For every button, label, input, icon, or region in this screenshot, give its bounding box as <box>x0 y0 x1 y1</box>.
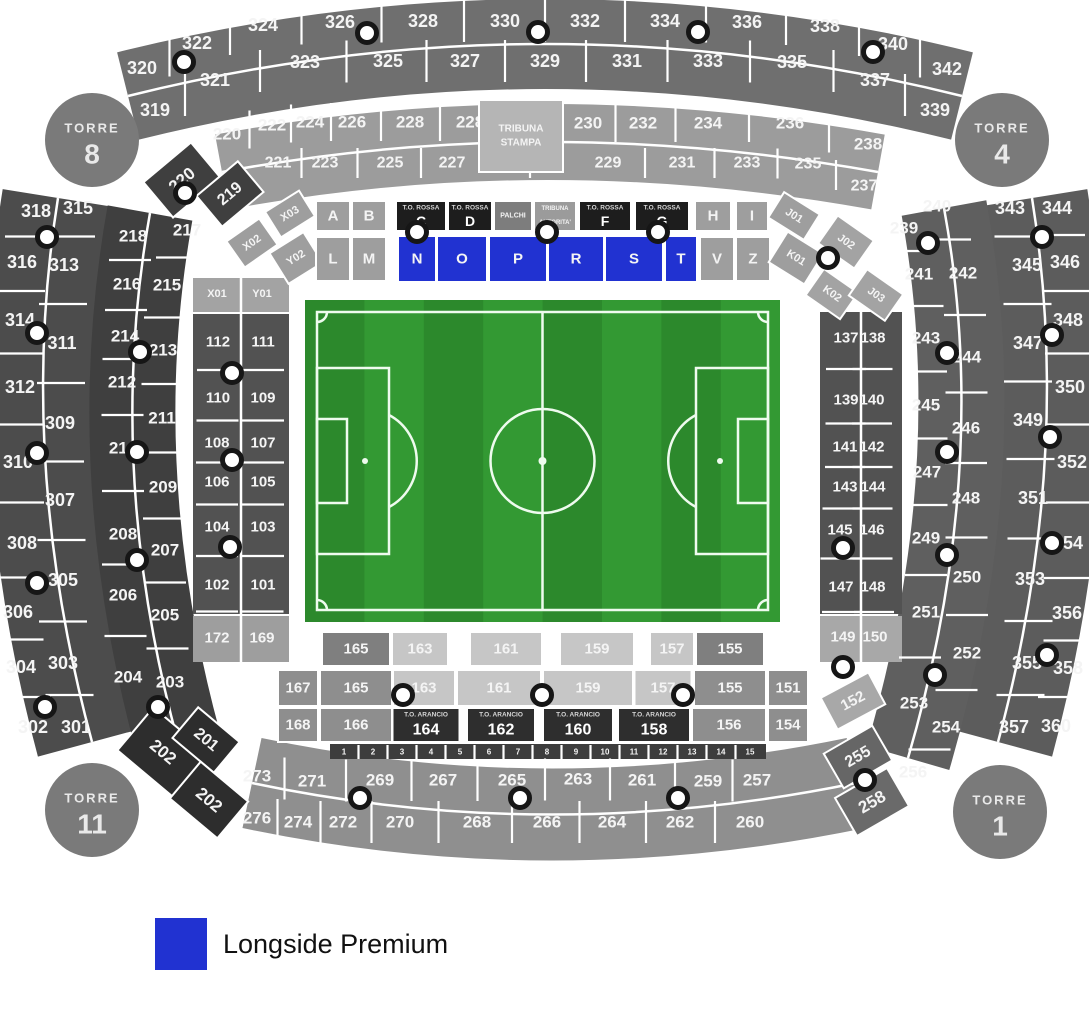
section-10[interactable]: 10 <box>601 748 610 757</box>
section-172[interactable]: 172 <box>204 630 229 647</box>
section-sub-label: T.O. ARANCIO <box>556 712 600 719</box>
section-142[interactable]: 142 <box>859 439 884 456</box>
section-111[interactable]: 111 <box>251 334 274 351</box>
section-D[interactable]: T.O. ROSSAD <box>448 201 492 231</box>
section-4[interactable]: 4 <box>429 748 434 757</box>
section-218[interactable]: 218 <box>119 227 147 246</box>
section-label: 163 <box>407 641 432 658</box>
section-TRIBUNA-STAMPA[interactable]: TRIBUNASTAMPA <box>479 100 563 172</box>
section-240[interactable]: 240 <box>923 197 951 216</box>
penalty-spot-right <box>717 458 723 464</box>
section-155[interactable]: 155 <box>696 632 764 666</box>
section-label: S <box>629 251 639 268</box>
entrance-dot <box>36 698 55 717</box>
section-165[interactable]: 165 <box>320 670 392 706</box>
section-209[interactable]: 209 <box>149 478 177 497</box>
section-140[interactable]: 140 <box>859 392 884 409</box>
section-338[interactable]: 338 <box>810 16 840 36</box>
section-246[interactable]: 246 <box>952 419 980 438</box>
section-139[interactable]: 139 <box>833 392 858 409</box>
entrance-dot <box>128 443 147 462</box>
section-label: 156 <box>716 717 741 734</box>
section-168[interactable]: 168 <box>278 708 318 742</box>
section-106[interactable]: 106 <box>204 474 229 491</box>
section-label: 155 <box>717 641 742 658</box>
section-208[interactable]: 208 <box>109 525 137 544</box>
section-334[interactable]: 334 <box>650 11 680 31</box>
entrance-dot <box>938 546 957 565</box>
entrance-dot <box>834 539 853 558</box>
torre-word: TORRE <box>64 121 119 136</box>
section-324[interactable]: 324 <box>248 15 278 35</box>
section-105[interactable]: 105 <box>250 474 275 491</box>
section-PALCHI[interactable]: PALCHI <box>494 201 532 231</box>
section-216[interactable]: 216 <box>113 275 141 294</box>
section-252[interactable]: 252 <box>953 644 981 663</box>
section-R[interactable]: R <box>548 236 604 282</box>
section-226[interactable]: 226 <box>338 113 366 132</box>
section-X02[interactable]: X02 <box>226 218 277 267</box>
section-label: PALCHI <box>500 213 526 220</box>
section-148[interactable]: 148 <box>860 579 885 596</box>
section-label: P <box>513 251 523 268</box>
section-109[interactable]: 109 <box>250 390 275 407</box>
section-351[interactable]: 351 <box>1018 488 1048 508</box>
section-150[interactable]: 150 <box>862 629 887 646</box>
section-label: M <box>363 251 376 268</box>
entrance-dot <box>1043 534 1062 553</box>
section-label: Z <box>748 251 757 268</box>
section-166[interactable]: 166 <box>320 708 392 742</box>
section-263[interactable]: 263 <box>564 770 592 789</box>
section-158[interactable]: T.O. ARANCIO158 <box>618 708 690 742</box>
section-205[interactable]: 205 <box>151 606 179 625</box>
torre-number: 8 <box>84 139 100 170</box>
torre-number: 11 <box>77 809 107 840</box>
section-B[interactable]: B <box>352 201 386 231</box>
section-347[interactable]: 347 <box>1013 333 1043 353</box>
section-107[interactable]: 107 <box>250 435 275 452</box>
entrance-dot <box>1043 326 1062 345</box>
torre-number: 4 <box>994 139 1010 170</box>
section-333[interactable]: 333 <box>693 51 723 71</box>
section-253[interactable]: 253 <box>900 694 928 713</box>
penalty-spot-left <box>362 458 368 464</box>
section-328[interactable]: 328 <box>408 11 438 31</box>
section-248[interactable]: 248 <box>952 489 980 508</box>
entrance-dot <box>674 686 693 705</box>
section-M[interactable]: M <box>352 237 386 281</box>
section-3[interactable]: 3 <box>400 748 405 757</box>
section-319[interactable]: 319 <box>140 100 170 120</box>
torre-word: TORRE <box>974 121 1029 136</box>
section-329[interactable]: 329 <box>530 51 560 71</box>
section-161[interactable]: 161 <box>470 632 542 666</box>
entrance-dot <box>938 443 957 462</box>
entrance-dot <box>669 789 688 808</box>
section-228[interactable]: 228 <box>396 113 424 132</box>
section-label: D <box>465 213 475 229</box>
section-274[interactable]: 274 <box>284 813 313 832</box>
section-Y01[interactable]: Y01 <box>252 288 272 300</box>
section-242[interactable]: 242 <box>949 264 977 283</box>
entrance-dot <box>351 789 370 808</box>
section-X01[interactable]: X01 <box>207 288 227 300</box>
section-222[interactable]: 222 <box>258 116 286 135</box>
section-345[interactable]: 345 <box>1012 255 1042 275</box>
entrance-dot <box>919 234 938 253</box>
section-141[interactable]: 141 <box>832 439 857 456</box>
section-261[interactable]: 261 <box>628 771 656 790</box>
section-169[interactable]: 169 <box>249 630 274 647</box>
section-label: 158 <box>641 722 668 739</box>
section-159[interactable]: 159 <box>543 670 633 706</box>
entrance-dot <box>28 324 47 343</box>
section-label-line1: TRIBUNA <box>499 124 544 135</box>
legend-color-swatch <box>155 918 207 970</box>
entrance-dot <box>358 24 377 43</box>
section-273[interactable]: 273 <box>243 767 271 786</box>
section-327[interactable]: 327 <box>450 51 480 71</box>
section-149[interactable]: 149 <box>830 629 855 646</box>
section-305[interactable]: 305 <box>48 570 78 590</box>
section-156[interactable]: 156 <box>692 708 766 742</box>
section-label: O <box>456 251 468 268</box>
section-213[interactable]: 213 <box>149 341 177 360</box>
section-label: Y01 <box>252 288 272 300</box>
section-203[interactable]: 203 <box>156 673 184 692</box>
section-311[interactable]: 311 <box>47 333 76 353</box>
section-147[interactable]: 147 <box>828 579 853 596</box>
section-label: 164 <box>413 722 440 739</box>
section-label: 161 <box>486 680 511 697</box>
football-pitch <box>305 300 780 622</box>
section-356[interactable]: 356 <box>1052 603 1082 623</box>
section-309[interactable]: 309 <box>45 413 75 433</box>
section-label: 168 <box>285 717 310 734</box>
section-212[interactable]: 212 <box>108 373 136 392</box>
section-sub-label: T.O. ARANCIO <box>404 712 448 719</box>
section-V[interactable]: V <box>700 237 734 281</box>
section-label: 160 <box>565 722 592 739</box>
entrance-dot <box>394 686 413 705</box>
section-sub-label: T.O. ROSSA <box>644 205 681 212</box>
section-label-line2: STAMPA <box>501 138 542 149</box>
section-360[interactable]: 360 <box>1041 716 1071 736</box>
section-312[interactable]: 312 <box>5 377 35 397</box>
section-104[interactable]: 104 <box>204 519 230 536</box>
section-P[interactable]: P <box>489 236 547 282</box>
section-339[interactable]: 339 <box>920 100 950 120</box>
legend-label: Longside Premium <box>223 929 448 960</box>
section-sub-label: T.O. ROSSA <box>587 205 624 212</box>
section-207[interactable]: 207 <box>151 541 179 560</box>
section-label: V <box>712 251 722 268</box>
section-163[interactable]: 163 <box>392 632 448 666</box>
section-350[interactable]: 350 <box>1055 377 1085 397</box>
section-346[interactable]: 346 <box>1050 252 1080 272</box>
section-T[interactable]: T <box>665 236 697 282</box>
section-220[interactable]: 220 <box>213 125 241 144</box>
section-label: 159 <box>584 641 609 658</box>
section-230[interactable]: 230 <box>574 114 602 133</box>
section-label: 167 <box>285 680 310 697</box>
entrance-dot <box>926 666 945 685</box>
section-label: 162 <box>488 722 515 739</box>
section-101[interactable]: 101 <box>250 577 275 594</box>
section-249[interactable]: 249 <box>912 529 940 548</box>
section-103[interactable]: 103 <box>250 519 275 536</box>
section-label: 163 <box>411 680 436 697</box>
section-262[interactable]: 262 <box>666 813 694 832</box>
torre-word: TORRE <box>972 793 1027 808</box>
section-O[interactable]: O <box>437 236 487 282</box>
section-239[interactable]: 239 <box>890 219 918 238</box>
section-353[interactable]: 353 <box>1015 569 1045 589</box>
section-323[interactable]: 323 <box>290 52 320 72</box>
section-157[interactable]: 157 <box>650 632 694 666</box>
entrance-dot <box>538 223 557 242</box>
section-F[interactable]: T.O. ROSSAF <box>579 201 631 231</box>
torre-number: 1 <box>992 811 1008 842</box>
section-266[interactable]: 266 <box>533 813 561 832</box>
section-label: A <box>328 208 339 225</box>
section-label: H <box>708 208 719 225</box>
entrance-dot <box>529 23 548 42</box>
section-11[interactable]: 11 <box>630 748 639 757</box>
section-108[interactable]: 108 <box>204 435 229 452</box>
section-268[interactable]: 268 <box>463 813 491 832</box>
entrance-dot <box>149 698 168 717</box>
section-269[interactable]: 269 <box>366 771 394 790</box>
section-160[interactable]: T.O. ARANCIO160 <box>543 708 613 742</box>
section-161[interactable]: 161 <box>457 670 541 706</box>
section-223[interactable]: 223 <box>312 155 339 172</box>
legend: Longside Premium <box>155 918 448 970</box>
section-112[interactable]: 112 <box>206 334 230 351</box>
entrance-dot <box>408 223 427 242</box>
entrance-dot <box>689 23 708 42</box>
section-233[interactable]: 233 <box>734 155 761 172</box>
section-label: N <box>412 251 423 268</box>
section-260[interactable]: 260 <box>736 813 764 832</box>
section-label: 165 <box>343 680 368 697</box>
section-357[interactable]: 357 <box>999 717 1029 737</box>
section-326[interactable]: 326 <box>325 12 355 32</box>
entrance-dot <box>28 444 47 463</box>
section-241[interactable]: 241 <box>905 265 933 284</box>
section-322[interactable]: 322 <box>182 33 212 53</box>
entrance-dot <box>511 789 530 808</box>
section-276[interactable]: 276 <box>243 809 271 828</box>
entrance-dot <box>834 658 853 677</box>
section-237[interactable]: 237 <box>851 178 878 195</box>
section-256[interactable]: 256 <box>899 763 927 782</box>
section-K01[interactable]: K01 <box>769 232 824 285</box>
section-110[interactable]: 110 <box>206 390 230 407</box>
section-162[interactable]: T.O. ARANCIO162 <box>467 708 535 742</box>
section-271[interactable]: 271 <box>298 772 326 791</box>
section-229[interactable]: 229 <box>595 155 622 172</box>
entrance-dot <box>856 771 875 790</box>
section-7[interactable]: 7 <box>516 748 521 757</box>
section-217[interactable]: 217 <box>173 221 201 240</box>
torre-4: TORRE4 <box>955 93 1049 187</box>
section-267[interactable]: 267 <box>429 771 457 790</box>
section-sub-label: T.O. ARANCIO <box>479 712 523 719</box>
section-159[interactable]: 159 <box>560 632 634 666</box>
section-235[interactable]: 235 <box>795 156 822 173</box>
section-137[interactable]: 137 <box>833 330 858 347</box>
section-label: X01 <box>207 288 227 300</box>
entrance-dot <box>131 343 150 362</box>
section-14[interactable]: 14 <box>717 748 726 757</box>
section-234[interactable]: 234 <box>694 114 723 133</box>
section-308[interactable]: 308 <box>7 533 37 553</box>
section-344[interactable]: 344 <box>1042 198 1072 218</box>
torre-word: TORRE <box>64 791 119 806</box>
section-label: 165 <box>343 641 368 658</box>
entrance-dot <box>223 364 242 383</box>
entrance-dot <box>221 538 240 557</box>
section-12[interactable]: 12 <box>659 748 668 757</box>
section-331[interactable]: 331 <box>612 51 642 71</box>
section-250[interactable]: 250 <box>953 568 981 587</box>
section-337[interactable]: 337 <box>860 70 890 90</box>
section-221[interactable]: 221 <box>265 155 292 172</box>
section-label: 154 <box>775 717 801 734</box>
section-label: F <box>601 213 610 229</box>
section-231[interactable]: 231 <box>669 155 696 172</box>
section-1[interactable]: 1 <box>342 748 347 757</box>
section-307[interactable]: 307 <box>45 490 75 510</box>
section-315[interactable]: 315 <box>63 198 93 218</box>
section-330[interactable]: 330 <box>490 11 520 31</box>
section-label: 161 <box>493 641 518 658</box>
section-Z[interactable]: Z <box>736 237 770 281</box>
entrance-dot <box>1033 228 1052 247</box>
center-spot <box>539 457 547 465</box>
section-I[interactable]: I <box>736 201 768 231</box>
section-272[interactable]: 272 <box>329 813 357 832</box>
torre-8: TORRE8 <box>45 93 139 187</box>
section-227[interactable]: 227 <box>439 155 466 172</box>
section-164[interactable]: T.O. ARANCIO164 <box>393 708 460 742</box>
section-8[interactable]: 8 <box>545 748 550 757</box>
section-155[interactable]: 155 <box>694 670 766 706</box>
section-label: 166 <box>343 717 368 734</box>
section-257[interactable]: 257 <box>743 771 771 790</box>
section-shape[interactable] <box>479 100 563 172</box>
section-146[interactable]: 146 <box>859 522 884 539</box>
section-A[interactable]: A <box>316 201 350 231</box>
section-304[interactable]: 304 <box>6 657 36 677</box>
section-301[interactable]: 301 <box>61 717 91 737</box>
section-145[interactable]: 145 <box>827 522 852 539</box>
section-154[interactable]: 154 <box>768 708 808 742</box>
section-318[interactable]: 318 <box>21 201 51 221</box>
section-316[interactable]: 316 <box>7 252 37 272</box>
section-206[interactable]: 206 <box>109 586 137 605</box>
section-165[interactable]: 165 <box>322 632 390 666</box>
section-138[interactable]: 138 <box>860 330 885 347</box>
section-204[interactable]: 204 <box>114 668 143 687</box>
section-9[interactable]: 9 <box>574 748 579 757</box>
section-2[interactable]: 2 <box>371 748 376 757</box>
section-325[interactable]: 325 <box>373 51 403 71</box>
section-321[interactable]: 321 <box>200 70 230 90</box>
section-215[interactable]: 215 <box>153 276 181 295</box>
entrance-dot <box>175 53 194 72</box>
entrance-dot <box>128 551 147 570</box>
section-label: T <box>676 251 685 268</box>
section-243[interactable]: 243 <box>912 329 940 348</box>
section-247[interactable]: 247 <box>913 463 941 482</box>
section-306[interactable]: 306 <box>3 602 33 622</box>
section-15[interactable]: 15 <box>746 748 755 757</box>
section-label: 157 <box>659 641 684 658</box>
section-167[interactable]: 167 <box>278 670 318 706</box>
section-Y02[interactable]: Y02 <box>270 232 323 284</box>
section-251[interactable]: 251 <box>912 603 940 622</box>
section-352[interactable]: 352 <box>1057 452 1087 472</box>
section-343[interactable]: 343 <box>995 198 1025 218</box>
section-336[interactable]: 336 <box>732 12 762 32</box>
entrance-dot <box>864 43 883 62</box>
section-270[interactable]: 270 <box>386 813 414 832</box>
section-254[interactable]: 254 <box>932 718 961 737</box>
section-L[interactable]: L <box>316 237 350 281</box>
section-332[interactable]: 332 <box>570 11 600 31</box>
stadium-map: 3203223243263283303323343363383403423193… <box>0 0 1089 890</box>
section-13[interactable]: 13 <box>688 748 697 757</box>
section-5[interactable]: 5 <box>458 748 463 757</box>
section-6[interactable]: 6 <box>487 748 492 757</box>
section-211[interactable]: 211 <box>148 409 175 428</box>
section-259[interactable]: 259 <box>694 772 722 791</box>
section-313[interactable]: 313 <box>49 255 79 275</box>
section-224[interactable]: 224 <box>296 113 325 132</box>
section-349[interactable]: 349 <box>1013 410 1043 430</box>
section-sub-label: T.O. ROSSA <box>403 205 440 212</box>
section-238[interactable]: 238 <box>854 135 882 154</box>
entrance-dot <box>28 574 47 593</box>
section-sub-label: T.O. ARANCIO <box>632 712 676 719</box>
section-335[interactable]: 335 <box>777 52 807 72</box>
entrance-dot <box>533 686 552 705</box>
section-151[interactable]: 151 <box>768 670 808 706</box>
section-342[interactable]: 342 <box>932 59 962 79</box>
torre-11: TORRE11 <box>45 763 139 857</box>
section-302[interactable]: 302 <box>18 717 48 737</box>
section-225[interactable]: 225 <box>377 155 404 172</box>
section-264[interactable]: 264 <box>598 813 627 832</box>
section-144[interactable]: 144 <box>860 479 886 496</box>
section-label-line1: TRIBUNA <box>542 206 570 212</box>
section-143[interactable]: 143 <box>832 479 857 496</box>
section-303[interactable]: 303 <box>48 653 78 673</box>
section-358[interactable]: 358 <box>1053 658 1083 678</box>
section-102[interactable]: 102 <box>204 577 229 594</box>
section-H[interactable]: H <box>695 201 731 231</box>
section-sub-label: T.O. ROSSA <box>452 205 489 212</box>
section-320[interactable]: 320 <box>127 58 157 78</box>
section-232[interactable]: 232 <box>629 114 657 133</box>
section-236[interactable]: 236 <box>776 114 804 133</box>
section-label: R <box>571 251 582 268</box>
section-245[interactable]: 245 <box>912 396 940 415</box>
entrance-dot <box>649 223 668 242</box>
